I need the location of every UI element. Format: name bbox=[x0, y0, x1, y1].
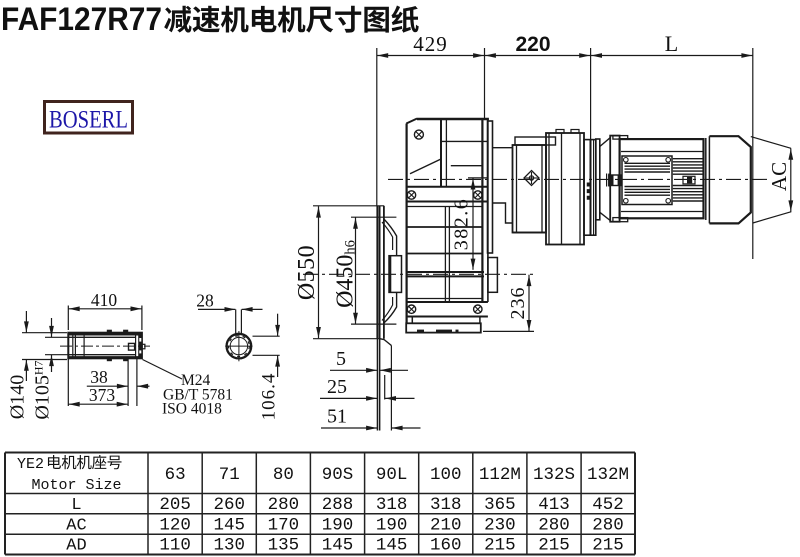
svg-text:215: 215 bbox=[538, 536, 570, 556]
svg-text:112M: 112M bbox=[479, 465, 521, 485]
svg-text:28: 28 bbox=[196, 291, 214, 311]
svg-text:L: L bbox=[665, 31, 678, 56]
svg-text:190: 190 bbox=[322, 515, 354, 535]
svg-text:410: 410 bbox=[91, 290, 118, 310]
svg-text:210: 210 bbox=[430, 515, 462, 535]
svg-text:130: 130 bbox=[213, 536, 245, 556]
svg-text:80: 80 bbox=[273, 465, 294, 485]
svg-text:236: 236 bbox=[507, 287, 529, 320]
svg-text:382.6: 382.6 bbox=[451, 198, 473, 251]
svg-text:280: 280 bbox=[592, 515, 624, 535]
svg-text:Ø550: Ø550 bbox=[294, 245, 320, 300]
svg-text:25: 25 bbox=[327, 376, 347, 398]
svg-text:YE2: YE2 bbox=[17, 456, 44, 473]
svg-text:Ø140: Ø140 bbox=[7, 375, 29, 419]
svg-text:120: 120 bbox=[159, 515, 191, 535]
svg-text:AD: AD bbox=[66, 537, 86, 556]
svg-text:429: 429 bbox=[413, 32, 448, 56]
svg-text:63: 63 bbox=[165, 465, 186, 485]
svg-text:215: 215 bbox=[484, 536, 516, 556]
svg-text:260: 260 bbox=[213, 495, 245, 515]
svg-text:AC: AC bbox=[66, 516, 86, 535]
svg-text:38: 38 bbox=[90, 367, 108, 387]
svg-text:318: 318 bbox=[376, 495, 408, 515]
svg-text:413: 413 bbox=[538, 495, 570, 515]
svg-text:90S: 90S bbox=[322, 465, 354, 485]
svg-text:51: 51 bbox=[327, 406, 347, 428]
svg-text:5: 5 bbox=[336, 348, 346, 370]
svg-text:160: 160 bbox=[430, 536, 462, 556]
svg-text:71: 71 bbox=[219, 465, 240, 485]
svg-text:BOSERL: BOSERL bbox=[49, 107, 128, 134]
svg-text:132S: 132S bbox=[533, 465, 575, 485]
svg-text:205: 205 bbox=[159, 495, 191, 515]
svg-text:110: 110 bbox=[159, 536, 191, 556]
svg-text:318: 318 bbox=[430, 495, 462, 515]
svg-text:280: 280 bbox=[538, 515, 570, 535]
svg-text:280: 280 bbox=[268, 495, 300, 515]
svg-text:145: 145 bbox=[376, 536, 408, 556]
svg-text:190: 190 bbox=[376, 515, 408, 535]
svg-text:215: 215 bbox=[592, 536, 624, 556]
svg-text:Motor Size: Motor Size bbox=[31, 477, 121, 494]
svg-text:145: 145 bbox=[322, 536, 354, 556]
svg-text:FAF127R77: FAF127R77 bbox=[1, 1, 162, 37]
svg-text:288: 288 bbox=[322, 495, 354, 515]
svg-text:373: 373 bbox=[89, 385, 116, 405]
svg-text:135: 135 bbox=[268, 536, 300, 556]
svg-text:AC: AC bbox=[767, 162, 791, 191]
svg-text:170: 170 bbox=[268, 515, 300, 535]
svg-text:106.4: 106.4 bbox=[259, 373, 280, 421]
svg-text:L: L bbox=[71, 496, 81, 515]
svg-text:100: 100 bbox=[430, 465, 462, 485]
svg-text:365: 365 bbox=[484, 495, 516, 515]
svg-text:220: 220 bbox=[515, 33, 550, 56]
svg-text:ISO 4018: ISO 4018 bbox=[162, 401, 222, 418]
svg-text:452: 452 bbox=[592, 495, 624, 515]
svg-text:90L: 90L bbox=[376, 465, 408, 485]
svg-text:230: 230 bbox=[484, 515, 516, 535]
svg-text:145: 145 bbox=[213, 515, 245, 535]
svg-text:132M: 132M bbox=[587, 465, 629, 485]
